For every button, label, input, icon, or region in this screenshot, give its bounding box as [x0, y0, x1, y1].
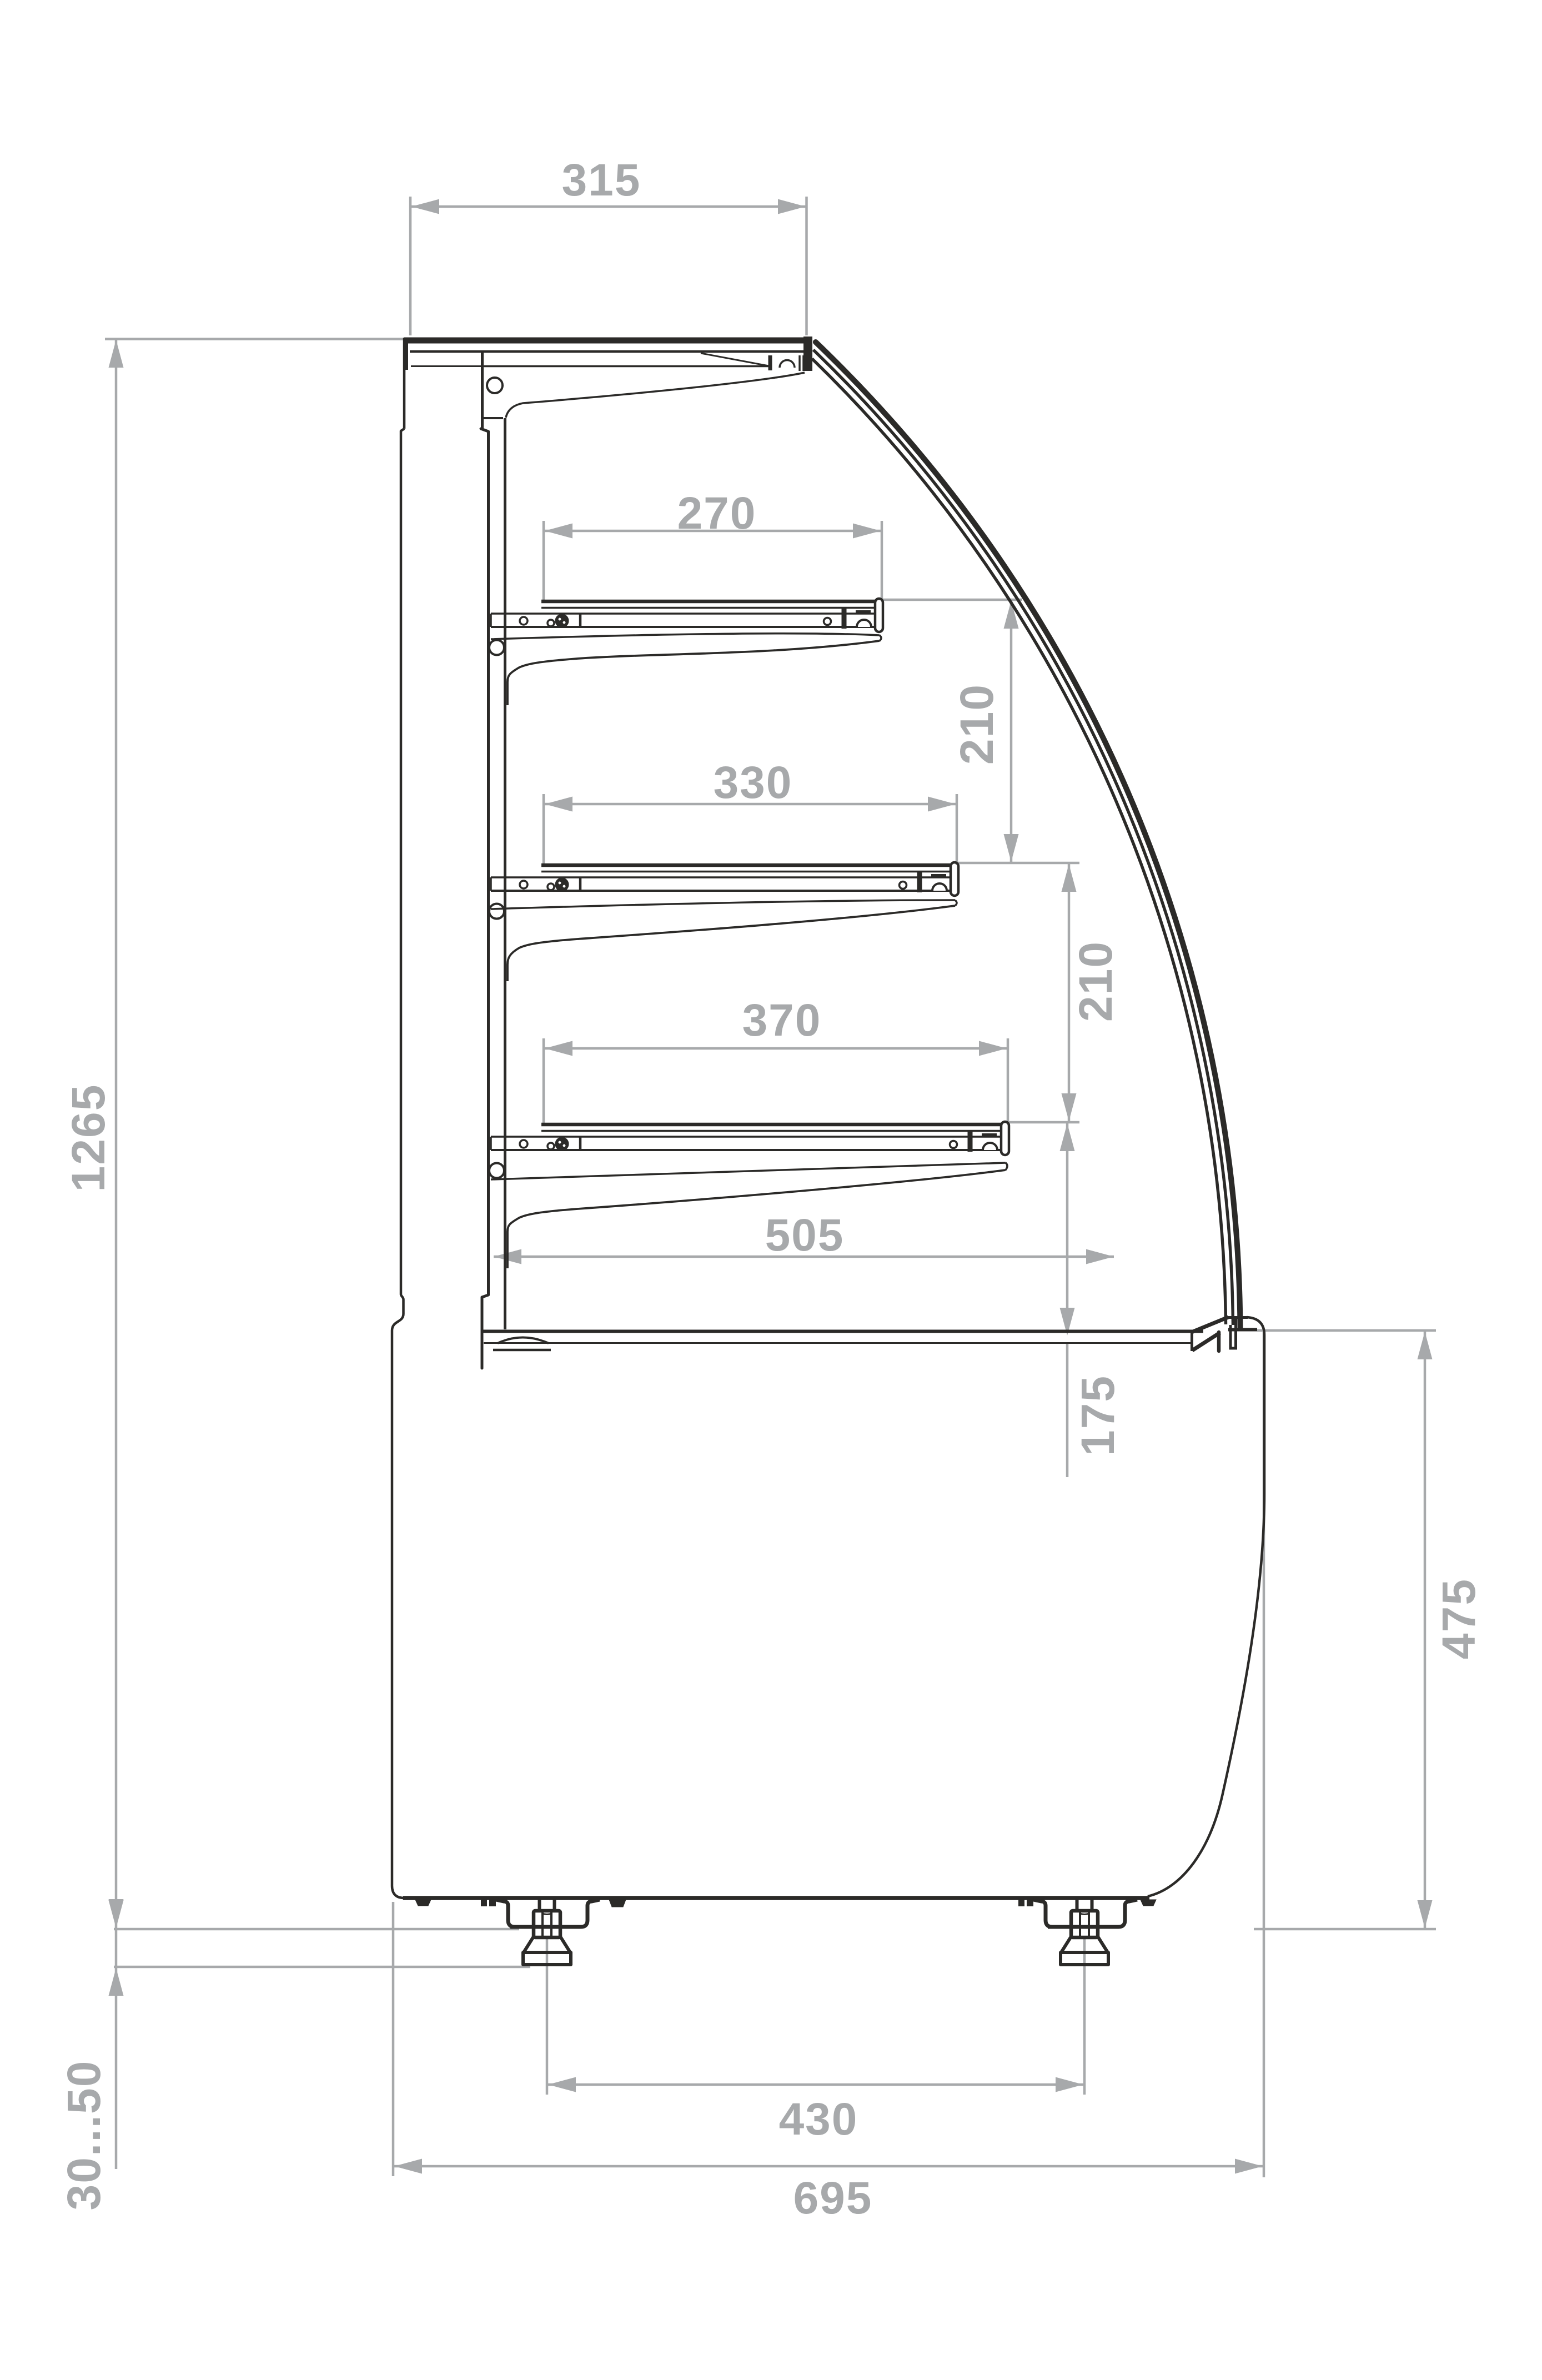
svg-text:505: 505 — [765, 1210, 845, 1261]
svg-text:30...50: 30...50 — [58, 2060, 110, 2211]
svg-text:175: 175 — [1072, 1375, 1124, 1456]
svg-text:370: 370 — [742, 995, 822, 1046]
svg-text:695: 695 — [793, 2173, 873, 2223]
svg-text:430: 430 — [779, 2094, 858, 2145]
svg-text:475: 475 — [1433, 1578, 1485, 1659]
svg-text:330: 330 — [714, 757, 793, 808]
svg-text:210: 210 — [951, 684, 1003, 765]
svg-text:270: 270 — [677, 488, 757, 539]
svg-text:210: 210 — [1069, 941, 1122, 1022]
svg-text:315: 315 — [562, 155, 641, 205]
svg-text:1265: 1265 — [62, 1084, 114, 1192]
